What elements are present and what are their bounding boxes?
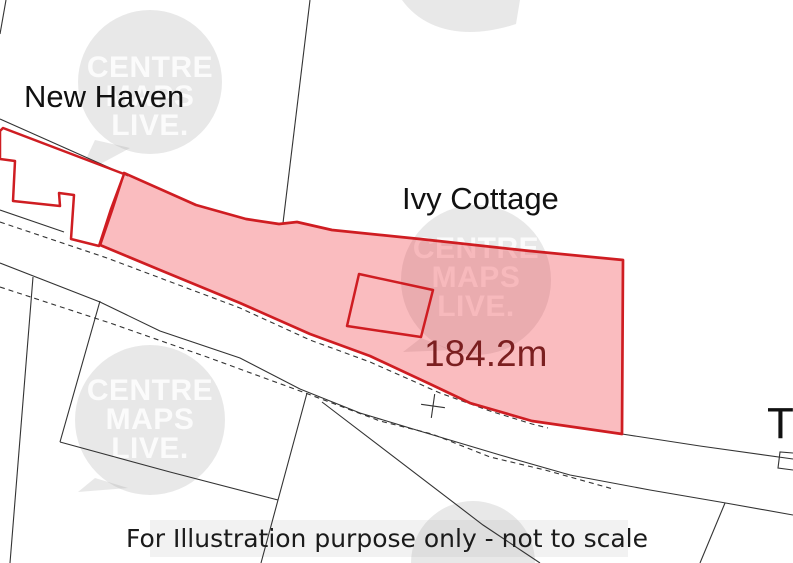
label-t-partial: T	[767, 399, 793, 448]
watermark-bubble-bottomleft-text: LIVE.	[111, 432, 189, 465]
site-plan-page: CENTREMAPSLIVE.CENTREMAPSLIVE.CENTREMAPS…	[0, 0, 793, 563]
watermark-blob-top	[402, 0, 520, 32]
parcel-branch-right	[700, 503, 725, 563]
parcel-line-far-left	[10, 277, 33, 563]
small-building-right-edge	[778, 452, 793, 470]
road-upper-edge-left	[0, 210, 64, 232]
parcel-line-top	[283, 0, 310, 223]
label-ivy-cottage: Ivy Cottage	[402, 181, 559, 216]
label-new-haven: New Haven	[24, 79, 184, 114]
label-measurement: 184.2m	[424, 333, 547, 374]
label-disclaimer: For Illustration purpose only - not to s…	[126, 524, 648, 553]
site-plan-map: CENTREMAPSLIVE.CENTREMAPSLIVE.CENTREMAPS…	[0, 0, 793, 563]
parcel-line-top-left-corner	[0, 0, 6, 34]
